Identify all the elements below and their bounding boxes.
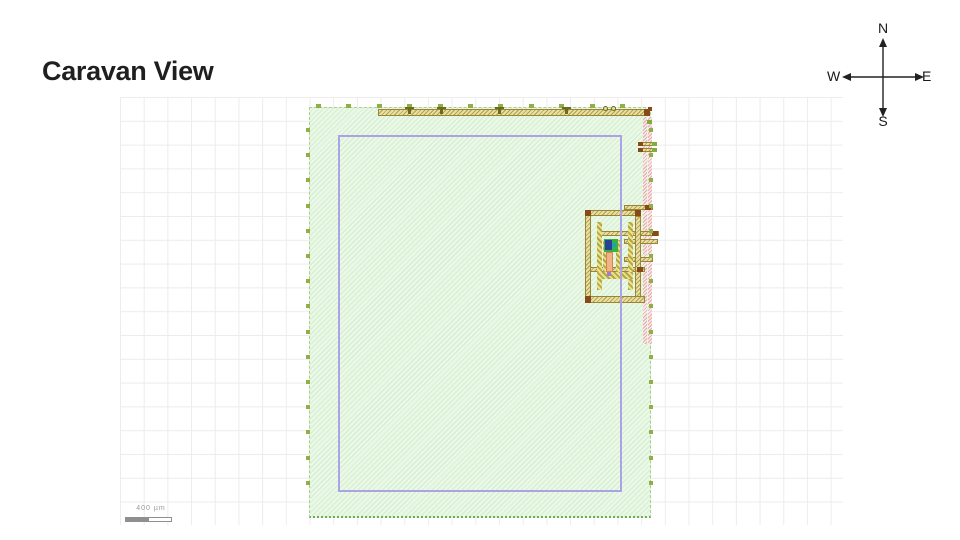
via-cap: [638, 142, 643, 146]
io-pad: [649, 481, 653, 485]
io-pad: [306, 430, 310, 434]
io-pad: [306, 178, 310, 182]
io-pad: [306, 153, 310, 157]
io-pad: [649, 153, 653, 157]
via-cap: [635, 210, 641, 216]
via-cap: [648, 107, 652, 111]
io-pad: [529, 104, 534, 108]
bond-ring-mark: [603, 106, 608, 111]
io-pad: [306, 254, 310, 258]
scale-bar-rule: [125, 517, 172, 522]
io-pad: [649, 304, 653, 308]
macro-pad-column: [628, 222, 633, 290]
macro-ring-right: [635, 216, 641, 301]
io-pad: [306, 229, 310, 233]
io-pad: [649, 330, 653, 334]
io-pad: [306, 355, 310, 359]
io-pad: [649, 405, 653, 409]
scale-bar-fill: [126, 518, 149, 521]
via-cap: [637, 267, 643, 272]
via-cap: [638, 148, 643, 152]
io-pad: [620, 104, 625, 108]
io-pad: [306, 279, 310, 283]
io-pad: [306, 481, 310, 485]
io-pad: [468, 104, 473, 108]
io-pad: [306, 128, 310, 132]
io-pad: [649, 229, 653, 233]
io-pad: [649, 430, 653, 434]
io-pad: [649, 178, 653, 182]
io-pad: [316, 104, 321, 108]
rail-t-mark: [498, 108, 501, 114]
io-pad: [649, 254, 653, 258]
core-area-boundary: [338, 135, 622, 492]
io-pad: [306, 405, 310, 409]
io-pad: [306, 330, 310, 334]
rail-t-mark: [440, 108, 443, 114]
io-pad: [649, 456, 653, 460]
rail-t-mark: [408, 108, 411, 114]
io-pad: [649, 355, 653, 359]
rail-t-mark: [565, 108, 568, 114]
pad-mark: [652, 148, 657, 152]
io-pad: [306, 380, 310, 384]
io-pad: [649, 279, 653, 283]
io-pad: [306, 304, 310, 308]
bond-ring-mark: [611, 106, 616, 111]
io-pad: [306, 456, 310, 460]
pad-mark: [652, 142, 657, 146]
io-pad: [649, 380, 653, 384]
io-pad: [649, 204, 653, 208]
pad-mark: [647, 120, 652, 124]
layout-viewport: [0, 0, 960, 540]
io-pad: [306, 204, 310, 208]
io-pad: [590, 104, 595, 108]
io-pad: [649, 128, 653, 132]
io-pad: [346, 104, 351, 108]
scale-bar: 400 µm: [124, 505, 174, 525]
scale-bar-label: 400 µm: [124, 505, 178, 512]
io-pad: [377, 104, 382, 108]
